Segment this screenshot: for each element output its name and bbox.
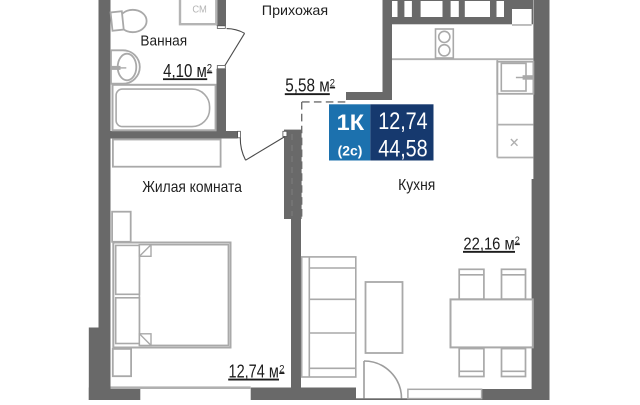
- svg-text:1К: 1К: [337, 110, 365, 135]
- svg-text:Ванная: Ванная: [140, 34, 187, 50]
- svg-text:22,16 м: 22,16 м: [463, 234, 514, 254]
- svg-text:12,74: 12,74: [378, 108, 428, 135]
- svg-text:4,10 м: 4,10 м: [163, 61, 207, 81]
- svg-text:(2с): (2с): [338, 142, 363, 158]
- svg-text:Жилая комната: Жилая комната: [142, 179, 242, 196]
- svg-text:5,58 м: 5,58 м: [285, 76, 330, 96]
- svg-text:12,74 м: 12,74 м: [229, 361, 279, 381]
- svg-text:44,58: 44,58: [378, 136, 428, 163]
- svg-text:СМ: СМ: [192, 5, 207, 16]
- svg-text:Прихожая: Прихожая: [262, 2, 328, 18]
- svg-text:Кухня: Кухня: [398, 177, 435, 194]
